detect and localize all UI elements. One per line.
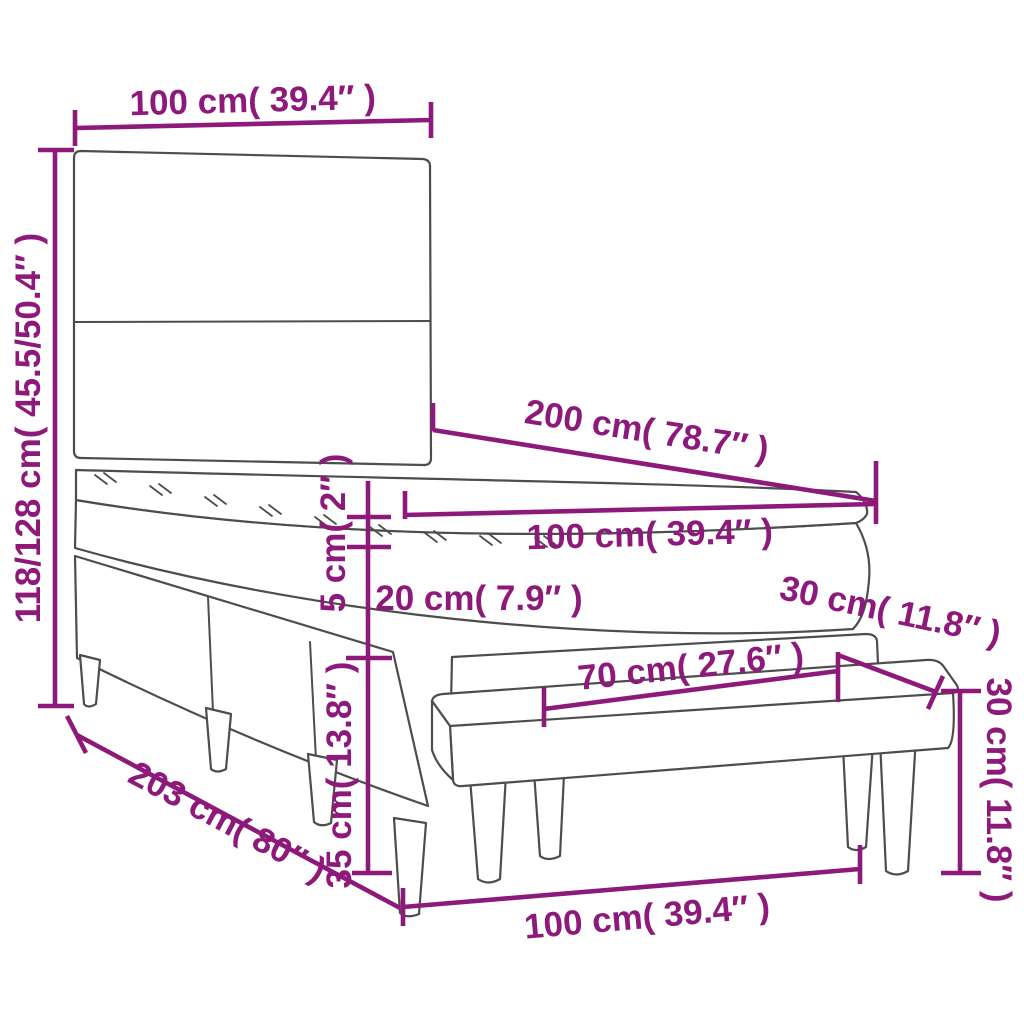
headboard-divider [74,321,430,322]
dim-label-total-height: 118/128 cm( 45.5/50.4″ ) [9,233,48,623]
diagram-canvas: 100 cm( 39.4″ ) 118/128 cm( 45.5/50.4″ )… [0,0,1024,1024]
dim-label-topper-thickness: 5 cm( 2″ ) [314,454,353,613]
dim-label-bench-height: 30 cm( 11.8″ ) [979,678,1018,903]
dim-bench-length: 100 cm( 39.4″ ) [403,845,860,947]
bench-leg [880,736,916,875]
bench-leg [843,744,873,850]
dim-label-headboard-width: 100 cm( 39.4″ ) [129,78,376,123]
dim-label-mattress-width: 100 cm( 39.4″ ) [526,512,773,557]
dim-label-base-length: 203 cm( 80″ ) [122,754,332,890]
dim-label-mattress-thickness: 20 cm( 7.9″ ) [375,579,582,618]
bed-dimension-diagram: 100 cm( 39.4″ ) 118/128 cm( 45.5/50.4″ )… [0,0,1024,1024]
bed-leg [206,708,231,772]
dim-headboard-width: 100 cm( 39.4″ ) [75,78,431,146]
bench-leg [470,774,506,883]
dim-total-height: 118/128 cm( 45.5/50.4″ ) [9,150,74,706]
bed-leg [80,655,100,707]
bed-leg [394,818,426,916]
dim-label-bed-length: 200 cm( 78.7″ ) [522,392,771,469]
bed-headboard [74,151,431,465]
